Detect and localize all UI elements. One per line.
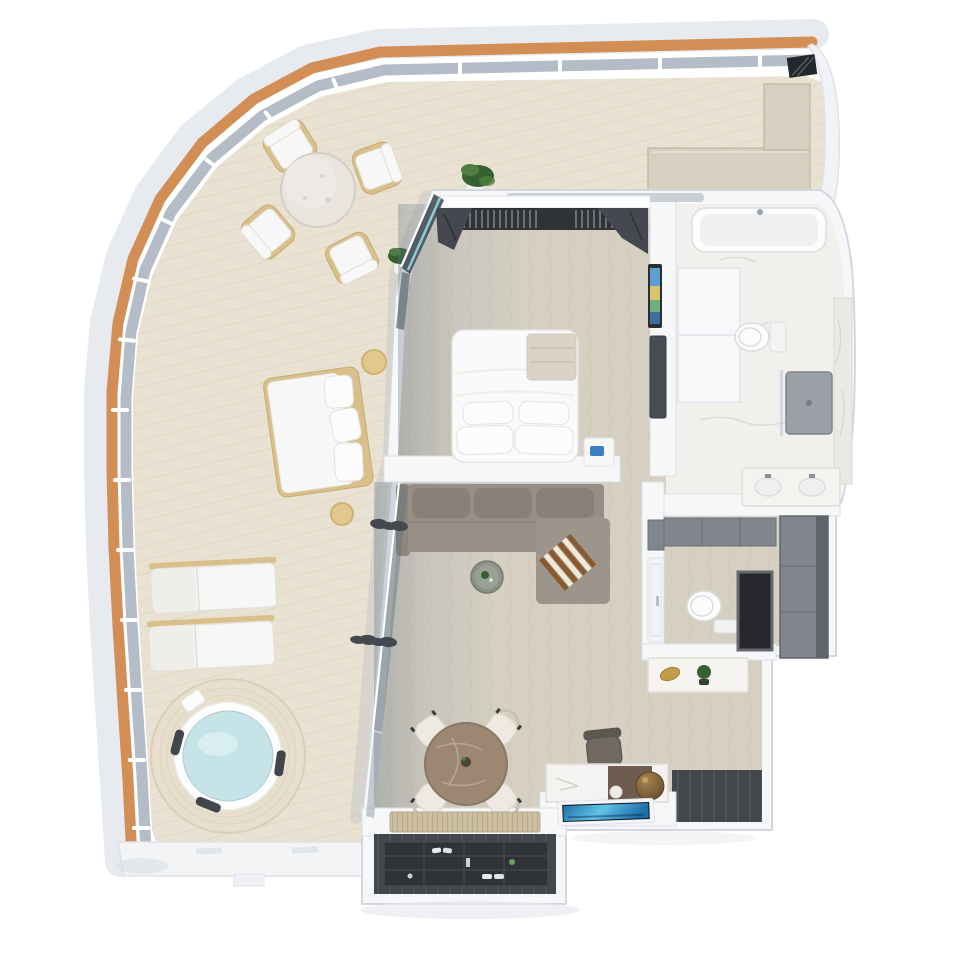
nightstand — [584, 438, 614, 466]
outdoor-dining-table — [281, 153, 355, 227]
bathtub — [692, 208, 826, 252]
marble-wall — [834, 298, 852, 484]
deck-edge-band — [116, 842, 366, 886]
toilet — [735, 322, 786, 352]
outdoor-daybed — [262, 366, 374, 498]
bed-throw — [527, 334, 576, 380]
wall-art — [648, 264, 662, 328]
floorplan-canvas — [0, 0, 960, 960]
shower — [780, 370, 832, 436]
low-cabinet — [648, 520, 664, 550]
bronze-sphere-decor — [636, 772, 664, 800]
dark-storage-niche — [738, 572, 772, 650]
dining-area — [407, 704, 525, 824]
ground-shadow — [572, 831, 756, 845]
floorplan-svg — [0, 0, 960, 960]
vanity-with-sinks — [742, 468, 840, 506]
wc-door — [648, 558, 664, 642]
desk-chair — [583, 727, 625, 769]
round-stone-dining-table — [425, 723, 507, 805]
wall-mounted-tv — [558, 798, 655, 825]
round-side-table — [362, 350, 386, 374]
shoe-shelf-with-items — [384, 842, 548, 886]
sun-lounger — [149, 557, 279, 614]
plant-decor — [697, 665, 711, 679]
round-side-table — [331, 503, 353, 525]
round-side-table-with-plant — [471, 561, 503, 593]
writing-desk — [546, 764, 668, 802]
low-cabinet — [664, 518, 776, 546]
vent-grille — [787, 54, 818, 78]
entry-hall — [374, 812, 556, 894]
double-bed — [452, 330, 578, 462]
ground-shadow — [360, 901, 580, 919]
sun-lounger — [147, 615, 277, 672]
sliding-wood-door — [390, 812, 540, 832]
tall-wardrobe — [780, 516, 828, 658]
suite — [350, 190, 855, 904]
hall-dark-floor — [672, 770, 762, 822]
console-with-decor — [648, 658, 748, 692]
whirlpool-hot-tub — [151, 679, 305, 833]
tv-panel — [650, 336, 666, 418]
